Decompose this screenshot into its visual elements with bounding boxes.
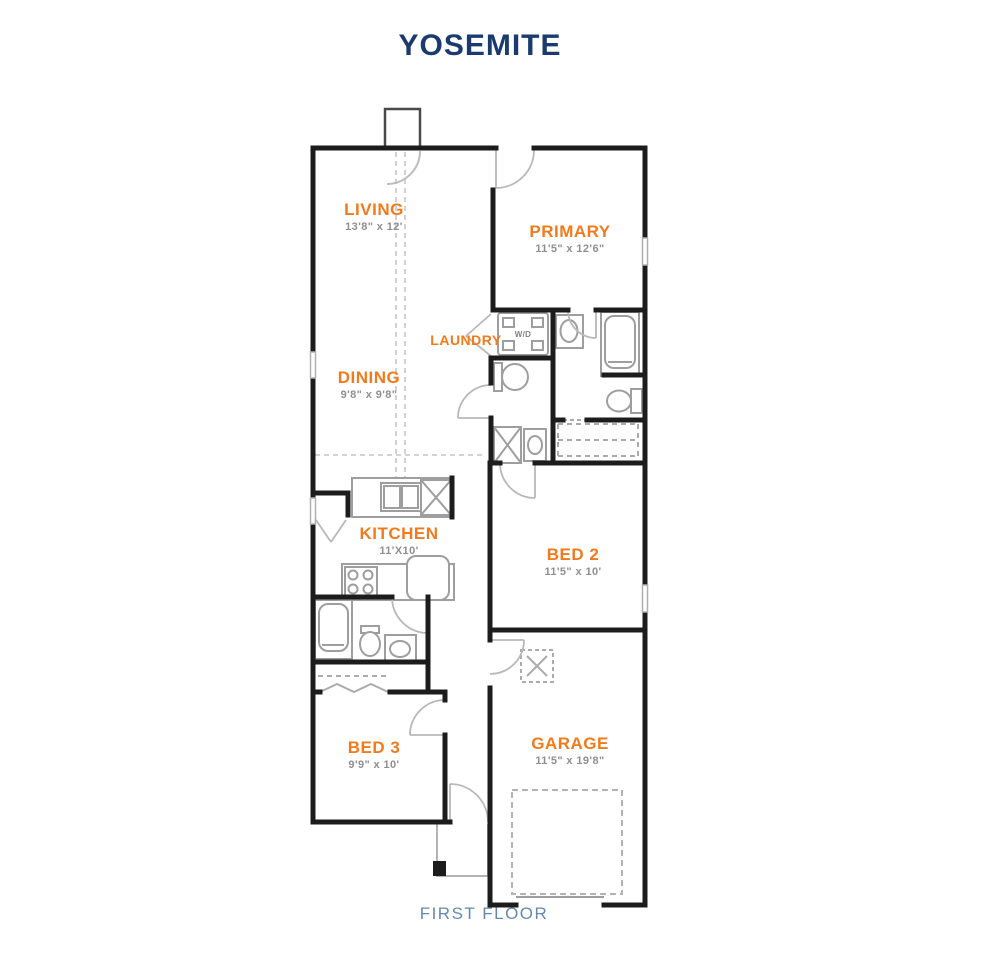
entry-porch [433, 824, 488, 876]
floor-label: FIRST FLOOR [420, 904, 549, 923]
bed2-name: BED 2 [547, 545, 600, 564]
wall-pantry [313, 493, 348, 515]
garage-door-icon [512, 790, 622, 897]
bed2-dims: 11'5" x 10' [544, 566, 601, 578]
primary-tub-icon [601, 312, 639, 376]
bed3-closet-bifold [320, 684, 388, 692]
room-label-bed2: BED 2 11'5" x 10' [544, 545, 601, 578]
primary-dims: 11'5" x 12'6" [535, 243, 604, 255]
water-heater-icon [521, 650, 553, 682]
bed3-name: BED 3 [348, 738, 401, 757]
kitchen-dims: 11'X10' [379, 545, 418, 557]
bath2-tub-icon [315, 600, 352, 659]
cooktop-icon [421, 480, 451, 515]
kitchen-name: KITCHEN [359, 524, 438, 543]
window-kitchen-icon [311, 498, 316, 524]
floorplan-page: YOSEMITE LIVING 13'8" x 12' PRIMARY 11'5… [0, 0, 1000, 969]
window-dining-icon [311, 352, 316, 378]
room-label-primary: PRIMARY 11'5" x 12'6" [529, 222, 610, 255]
living-dims: 13'8" x 12' [345, 221, 403, 233]
kitchen-counter-bottom [342, 556, 454, 600]
stove-icon [345, 567, 377, 597]
primary-name: PRIMARY [529, 222, 610, 241]
fridge-icon [407, 556, 449, 600]
plan-title: YOSEMITE [398, 29, 561, 62]
pantry-doors [316, 520, 346, 542]
bath2-vanity-icon [385, 635, 416, 662]
room-label-dining: DINING 9'8" x 9'8" [338, 368, 401, 401]
bath2-toilet-icon [360, 626, 380, 656]
window-primary-icon [643, 238, 648, 265]
kitchen-counter-top [352, 478, 452, 517]
bed3-door-swing [410, 700, 445, 735]
garage-dims: 11'5" x 19'8" [535, 755, 604, 767]
hallbath-sink-icon [524, 429, 546, 461]
room-label-bed3: BED 3 9'9" x 10' [348, 738, 401, 771]
hall-bath-door-swing [458, 385, 491, 418]
room-label-living: LIVING 13'8" x 12' [344, 200, 404, 233]
washer-dryer-label: W/D [515, 330, 531, 339]
dining-dims: 9'8" x 9'8" [341, 389, 398, 401]
bed3-dims: 9'9" x 10' [348, 759, 399, 771]
hallbath-shower-icon [494, 427, 521, 463]
porch-post-icon [433, 861, 446, 876]
garage-entry-door-swing [490, 640, 524, 674]
dining-name: DINING [338, 368, 401, 387]
living-name: LIVING [344, 200, 404, 219]
primary-toilet-icon [607, 389, 642, 413]
bath2-door-swing [392, 597, 428, 633]
front-door-swing [450, 784, 488, 822]
primary-door-swing [496, 150, 534, 188]
bed2-door-swing [500, 463, 535, 498]
garage-name: GARAGE [531, 734, 609, 753]
room-label-kitchen: KITCHEN 11'X10' [359, 524, 438, 557]
bed2-closet-rod [558, 424, 638, 456]
window-bed2-icon [643, 585, 648, 612]
laundry-name: LAUNDRY [430, 332, 502, 348]
room-label-garage: GARAGE 11'5" x 19'8" [531, 734, 609, 767]
hallbath-toilet-icon [494, 363, 528, 391]
floorplan-drawing: YOSEMITE LIVING 13'8" x 12' PRIMARY 11'5… [0, 0, 1000, 969]
